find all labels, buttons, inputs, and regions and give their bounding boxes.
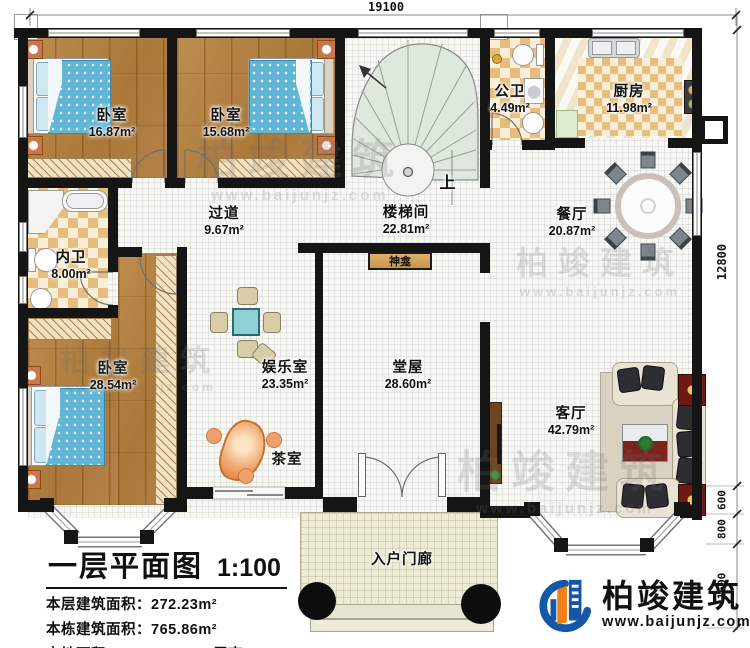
dim-seg-800: 800 bbox=[716, 519, 729, 539]
bay-pier bbox=[674, 502, 690, 516]
dim-right-height: 12800 bbox=[715, 244, 729, 280]
window bbox=[19, 86, 27, 138]
wall-niche bbox=[700, 116, 728, 144]
wall bbox=[167, 38, 177, 182]
room-label-bedroom2: 卧室15.68m² bbox=[203, 108, 250, 140]
floor-area-row: 本层建筑面积：272.23m² bbox=[46, 593, 293, 614]
room-label-bedroom1: 卧室16.87m² bbox=[89, 108, 136, 140]
wall bbox=[28, 178, 132, 188]
porch-column bbox=[461, 584, 501, 624]
window bbox=[494, 29, 540, 37]
room-label-stairwell: 楼梯间22.81m² bbox=[383, 205, 430, 237]
bay-pier bbox=[524, 502, 540, 516]
stairs-up-label: 上 bbox=[439, 174, 456, 193]
wall bbox=[285, 487, 323, 499]
wall bbox=[522, 140, 555, 150]
room-label-inner-bath: 内卫8.00m² bbox=[51, 250, 91, 282]
company-logo: 柏竣建筑 www.baijunjz.com bbox=[536, 574, 750, 636]
shrine-label: 神龛 bbox=[389, 253, 411, 269]
wall bbox=[218, 178, 345, 188]
wall bbox=[315, 253, 323, 497]
sliding-door bbox=[213, 487, 285, 499]
wall bbox=[555, 138, 585, 148]
wall bbox=[177, 247, 187, 500]
wall bbox=[545, 38, 555, 140]
bay-pier bbox=[40, 498, 54, 512]
company-logo-icon bbox=[536, 574, 594, 636]
entry-door-leaf bbox=[358, 453, 366, 497]
porch-column bbox=[298, 582, 336, 620]
wall bbox=[480, 322, 490, 518]
room-label-bedroom3: 卧室28.54m² bbox=[90, 361, 137, 393]
wall bbox=[165, 178, 185, 188]
room-label-hall: 堂屋28.60m² bbox=[385, 360, 432, 392]
bay-pier bbox=[164, 498, 178, 512]
room-label-living: 客厅42.79m² bbox=[548, 406, 595, 438]
dim-seg-600: 600 bbox=[716, 490, 729, 510]
window bbox=[19, 222, 27, 252]
wall bbox=[692, 38, 702, 520]
dim-top-width: 19100 bbox=[368, 0, 404, 14]
bay-pier bbox=[140, 530, 154, 544]
company-website: www.baijunjz.com bbox=[602, 614, 750, 630]
wall bbox=[18, 308, 118, 318]
plan-title-row: 一层平面图1:100 bbox=[46, 543, 287, 589]
wall bbox=[187, 487, 213, 499]
window bbox=[358, 29, 468, 37]
wall bbox=[335, 38, 345, 182]
room-label-porch: 入户门廊 bbox=[371, 552, 433, 569]
wall bbox=[668, 138, 702, 148]
site-area-row: 占地面积：280.00m²层高：3.6m bbox=[46, 643, 293, 648]
bay-pier bbox=[64, 530, 78, 544]
room-label-dining: 餐厅20.87m² bbox=[549, 207, 596, 239]
wall bbox=[447, 497, 482, 512]
building-area-row: 本栋建筑面积：765.86m² bbox=[46, 618, 293, 639]
entry-door-leaf bbox=[438, 453, 446, 497]
spiral-staircase bbox=[352, 40, 478, 205]
window bbox=[48, 29, 140, 37]
plan-scale: 1:100 bbox=[217, 554, 281, 582]
wall bbox=[118, 247, 142, 257]
room-label-hallway: 过道9.67m² bbox=[204, 206, 244, 238]
room-label-entertainment: 娱乐室23.35m² bbox=[262, 360, 309, 392]
bay-pier bbox=[640, 538, 654, 552]
floor-plan: 神龛 卧室16.87m² 卧室15.68m² 内卫8.00m² 过道9.67m²… bbox=[0, 0, 750, 648]
wall bbox=[108, 188, 118, 272]
wall bbox=[482, 506, 530, 518]
window bbox=[693, 152, 701, 236]
wall bbox=[480, 38, 490, 188]
bay-pier bbox=[554, 538, 568, 552]
window bbox=[592, 29, 684, 37]
wall bbox=[480, 253, 490, 273]
company-name: 柏竣建筑 bbox=[602, 580, 750, 614]
wall bbox=[480, 140, 492, 150]
window bbox=[196, 29, 290, 37]
room-label-public-bath: 公卫4.49m² bbox=[490, 84, 530, 116]
title-block: 一层平面图1:100 本层建筑面积：272.23m² 本栋建筑面积：765.86… bbox=[46, 543, 293, 648]
window bbox=[19, 388, 27, 466]
wall bbox=[323, 497, 357, 512]
window bbox=[19, 276, 27, 304]
shrine-shelf: 神龛 bbox=[368, 252, 432, 270]
plan-title: 一层平面图 bbox=[48, 551, 203, 583]
room-label-tea-room: 茶室 bbox=[272, 452, 303, 469]
company-logo-text: 柏竣建筑 www.baijunjz.com bbox=[602, 580, 750, 631]
room-label-kitchen: 厨房11.98m² bbox=[606, 84, 652, 116]
